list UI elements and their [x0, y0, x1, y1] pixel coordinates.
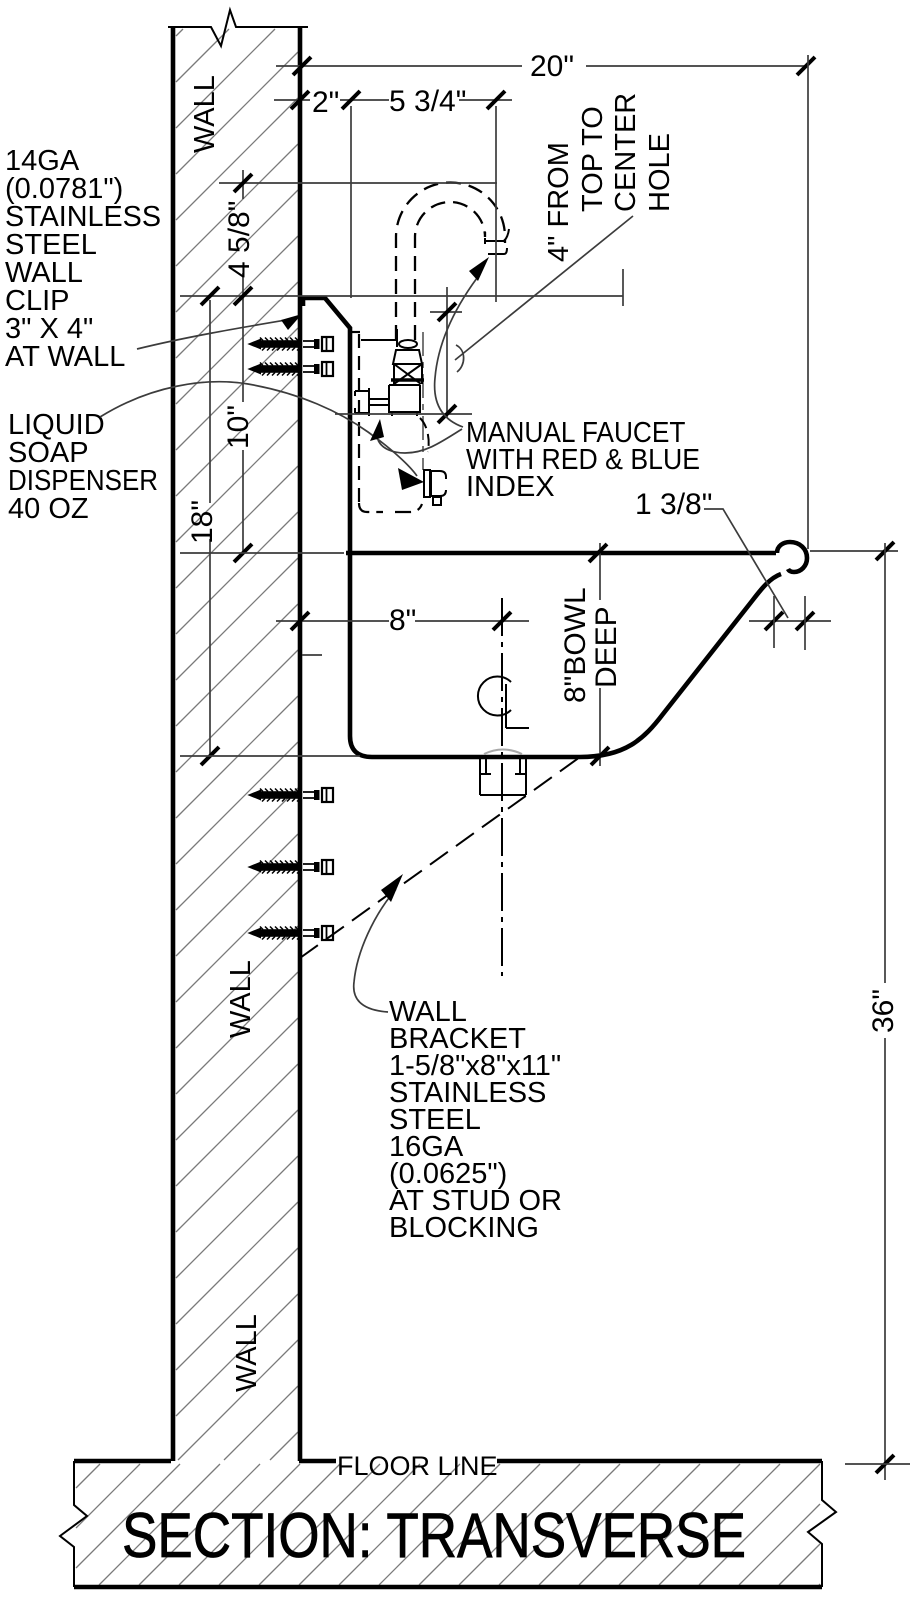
- svg-text:HOLE: HOLE: [644, 133, 676, 212]
- svg-text:1 3/8": 1 3/8": [635, 488, 712, 521]
- svg-text:SECTION: TRANSVERSE: SECTION: TRANSVERSE: [122, 1501, 746, 1571]
- svg-text:20": 20": [530, 50, 574, 83]
- svg-text:10": 10": [222, 405, 255, 449]
- svg-text:8"BOWL: 8"BOWL: [559, 587, 592, 703]
- svg-text:5 3/4": 5 3/4": [389, 85, 466, 118]
- svg-text:DEEP: DEEP: [590, 606, 623, 688]
- svg-text:36": 36": [867, 989, 900, 1033]
- svg-text:WALL: WALL: [225, 960, 257, 1038]
- svg-text:2": 2": [312, 86, 339, 119]
- svg-text:TOP TO: TOP TO: [577, 106, 609, 212]
- svg-text:8": 8": [389, 604, 416, 637]
- svg-text:CENTER: CENTER: [610, 93, 642, 212]
- svg-text:18": 18": [186, 500, 219, 544]
- svg-text:WALL: WALL: [189, 75, 221, 153]
- svg-text:FLOOR LINE: FLOOR LINE: [337, 1451, 498, 1481]
- svg-text:4" FROM: 4" FROM: [543, 142, 575, 262]
- svg-text:4 5/8": 4 5/8": [223, 201, 256, 278]
- svg-text:WALL: WALL: [231, 1314, 263, 1392]
